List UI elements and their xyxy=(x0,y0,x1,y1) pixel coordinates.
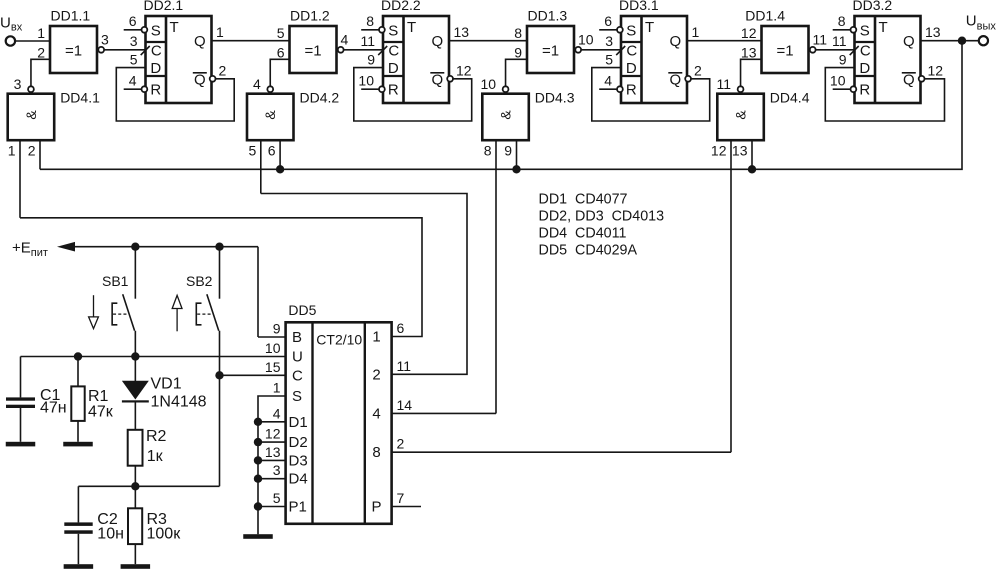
svg-text:D: D xyxy=(626,60,637,77)
svg-text:12: 12 xyxy=(741,25,757,41)
svg-text:12: 12 xyxy=(456,63,472,79)
svg-text:11: 11 xyxy=(397,358,412,374)
svg-text:2: 2 xyxy=(37,45,45,61)
svg-text:T: T xyxy=(879,19,888,36)
svg-text:=1: =1 xyxy=(542,42,559,59)
svg-text:S: S xyxy=(151,22,161,39)
svg-text:DD4.2: DD4.2 xyxy=(300,90,340,106)
svg-text:6: 6 xyxy=(268,143,276,159)
svg-text:6: 6 xyxy=(397,320,405,336)
svg-text:SB1: SB1 xyxy=(102,273,129,289)
svg-text:10н: 10н xyxy=(97,526,124,543)
svg-text:DD1 CD4077: DD1 CD4077 xyxy=(539,192,628,208)
svg-text:DD3.1: DD3.1 xyxy=(619,0,659,13)
svg-text:Q: Q xyxy=(903,33,915,50)
svg-text:4: 4 xyxy=(604,72,612,88)
svg-text:Q: Q xyxy=(431,33,443,50)
svg-text:1: 1 xyxy=(372,329,380,346)
svg-text:4: 4 xyxy=(341,31,349,47)
svg-text:4: 4 xyxy=(253,76,261,92)
svg-text:1N4148: 1N4148 xyxy=(151,394,207,411)
svg-text:DD5 CD4029A: DD5 CD4029A xyxy=(539,242,638,258)
svg-text:R: R xyxy=(388,82,399,99)
svg-text:12: 12 xyxy=(928,63,944,79)
svg-text:C: C xyxy=(292,367,303,384)
svg-text:DD2, DD3 CD4013: DD2, DD3 CD4013 xyxy=(539,209,665,225)
svg-text:D4: D4 xyxy=(289,471,308,488)
svg-text:C: C xyxy=(151,42,162,59)
svg-text:CT2/10: CT2/10 xyxy=(316,331,362,347)
svg-text:VD1: VD1 xyxy=(151,376,182,393)
svg-text:D3: D3 xyxy=(289,452,308,469)
svg-text:15: 15 xyxy=(265,359,281,375)
svg-text:6: 6 xyxy=(129,13,137,29)
svg-text:R: R xyxy=(626,82,637,99)
svg-text:1: 1 xyxy=(37,25,45,41)
svg-text:&: & xyxy=(262,110,278,120)
svg-text:3: 3 xyxy=(130,33,138,49)
svg-text:8: 8 xyxy=(484,143,492,159)
svg-text:100к: 100к xyxy=(147,526,182,543)
svg-text:S: S xyxy=(626,22,636,39)
svg-text:R: R xyxy=(859,82,870,99)
svg-text:5: 5 xyxy=(277,25,285,41)
svg-text:&: & xyxy=(732,110,748,120)
svg-text:DD4.4: DD4.4 xyxy=(770,90,810,106)
svg-text:S: S xyxy=(388,22,398,39)
svg-text:DD1.3: DD1.3 xyxy=(528,7,568,23)
svg-text:D2: D2 xyxy=(289,434,308,451)
svg-text:2: 2 xyxy=(372,366,380,383)
svg-text:3: 3 xyxy=(273,462,281,478)
svg-text:S: S xyxy=(860,22,870,39)
svg-text:1: 1 xyxy=(8,143,16,159)
svg-text:8: 8 xyxy=(366,13,374,29)
svg-text:10: 10 xyxy=(578,31,594,47)
svg-text:2: 2 xyxy=(28,143,36,159)
svg-text:11: 11 xyxy=(832,33,847,49)
svg-text:Q: Q xyxy=(194,33,206,50)
svg-text:13: 13 xyxy=(265,444,281,460)
svg-text:4: 4 xyxy=(129,72,137,88)
svg-text:8: 8 xyxy=(372,444,380,461)
svg-text:13: 13 xyxy=(732,143,748,159)
svg-text:11: 11 xyxy=(813,31,828,47)
svg-text:T: T xyxy=(407,19,416,36)
svg-text:10: 10 xyxy=(265,340,281,356)
svg-text:11: 11 xyxy=(360,33,375,49)
svg-text:Q: Q xyxy=(431,71,443,88)
svg-text:D: D xyxy=(859,60,870,77)
svg-text:DD1.1: DD1.1 xyxy=(51,7,91,23)
svg-text:DD4.3: DD4.3 xyxy=(535,90,575,106)
svg-text:DD5: DD5 xyxy=(288,302,316,318)
svg-text:DD2.1: DD2.1 xyxy=(144,0,184,13)
svg-text:DD2.2: DD2.2 xyxy=(381,0,421,13)
svg-text:P: P xyxy=(371,499,381,516)
svg-text:13: 13 xyxy=(741,45,757,61)
svg-text:10: 10 xyxy=(830,72,846,88)
svg-text:47н: 47н xyxy=(40,400,67,417)
svg-text:D: D xyxy=(150,60,161,77)
svg-text:4: 4 xyxy=(273,405,281,421)
svg-text:1: 1 xyxy=(216,24,224,40)
svg-text:DD1.2: DD1.2 xyxy=(290,7,330,23)
svg-text:5: 5 xyxy=(249,143,257,159)
svg-text:=1: =1 xyxy=(304,42,321,59)
svg-text:12: 12 xyxy=(265,426,281,442)
svg-text:6: 6 xyxy=(604,13,612,29)
svg-text:7: 7 xyxy=(397,490,405,506)
svg-text:13: 13 xyxy=(925,24,941,40)
svg-text:1к: 1к xyxy=(147,448,164,465)
svg-text:DD4 CD4011: DD4 CD4011 xyxy=(539,226,627,242)
svg-text:2: 2 xyxy=(397,436,405,452)
svg-text:P1: P1 xyxy=(289,499,307,516)
svg-text:10: 10 xyxy=(480,76,496,92)
svg-text:5: 5 xyxy=(273,490,281,506)
svg-text:11: 11 xyxy=(717,76,732,92)
svg-text:47к: 47к xyxy=(88,404,114,421)
svg-text:12: 12 xyxy=(711,143,727,159)
svg-text:D1: D1 xyxy=(289,414,308,431)
svg-text:DD3.2: DD3.2 xyxy=(853,0,893,13)
svg-text:6: 6 xyxy=(277,45,285,61)
svg-text:=1: =1 xyxy=(65,42,82,59)
svg-text:3: 3 xyxy=(101,31,109,47)
svg-text:R1: R1 xyxy=(88,388,109,405)
svg-text:1: 1 xyxy=(273,380,281,396)
svg-text:2: 2 xyxy=(694,63,702,79)
svg-text:&: & xyxy=(23,110,39,120)
svg-text:14: 14 xyxy=(397,397,413,413)
svg-text:5: 5 xyxy=(605,51,613,67)
svg-text:B: B xyxy=(292,329,302,346)
svg-text:9: 9 xyxy=(504,143,512,159)
svg-text:Q: Q xyxy=(194,71,206,88)
svg-text:9: 9 xyxy=(514,45,522,61)
svg-text:5: 5 xyxy=(130,51,138,67)
svg-text:10: 10 xyxy=(358,72,374,88)
svg-text:3: 3 xyxy=(605,33,613,49)
svg-text:=1: =1 xyxy=(776,42,793,59)
svg-text:R2: R2 xyxy=(146,428,167,445)
svg-text:S: S xyxy=(292,388,302,405)
svg-text:2: 2 xyxy=(219,63,227,79)
svg-text:1: 1 xyxy=(692,24,700,40)
svg-text:SB2: SB2 xyxy=(186,273,213,289)
svg-text:8: 8 xyxy=(514,25,522,41)
svg-text:DD4.1: DD4.1 xyxy=(60,90,100,106)
svg-text:9: 9 xyxy=(839,51,847,67)
svg-text:D: D xyxy=(388,60,399,77)
svg-text:Q: Q xyxy=(903,71,915,88)
svg-text:9: 9 xyxy=(367,51,375,67)
svg-text:C: C xyxy=(626,42,637,59)
svg-text:8: 8 xyxy=(838,13,846,29)
svg-text:9: 9 xyxy=(273,321,281,337)
svg-text:DD1.4: DD1.4 xyxy=(745,7,785,23)
svg-text:C: C xyxy=(388,42,399,59)
svg-text:Q: Q xyxy=(669,71,681,88)
svg-text:T: T xyxy=(170,19,179,36)
svg-text:U: U xyxy=(292,349,303,366)
svg-text:Q: Q xyxy=(669,33,681,50)
svg-text:3: 3 xyxy=(14,76,22,92)
svg-text:R: R xyxy=(150,82,161,99)
svg-text:&: & xyxy=(497,110,513,120)
svg-text:13: 13 xyxy=(454,24,470,40)
svg-text:C: C xyxy=(860,42,871,59)
svg-text:4: 4 xyxy=(372,405,380,422)
svg-text:T: T xyxy=(645,19,654,36)
